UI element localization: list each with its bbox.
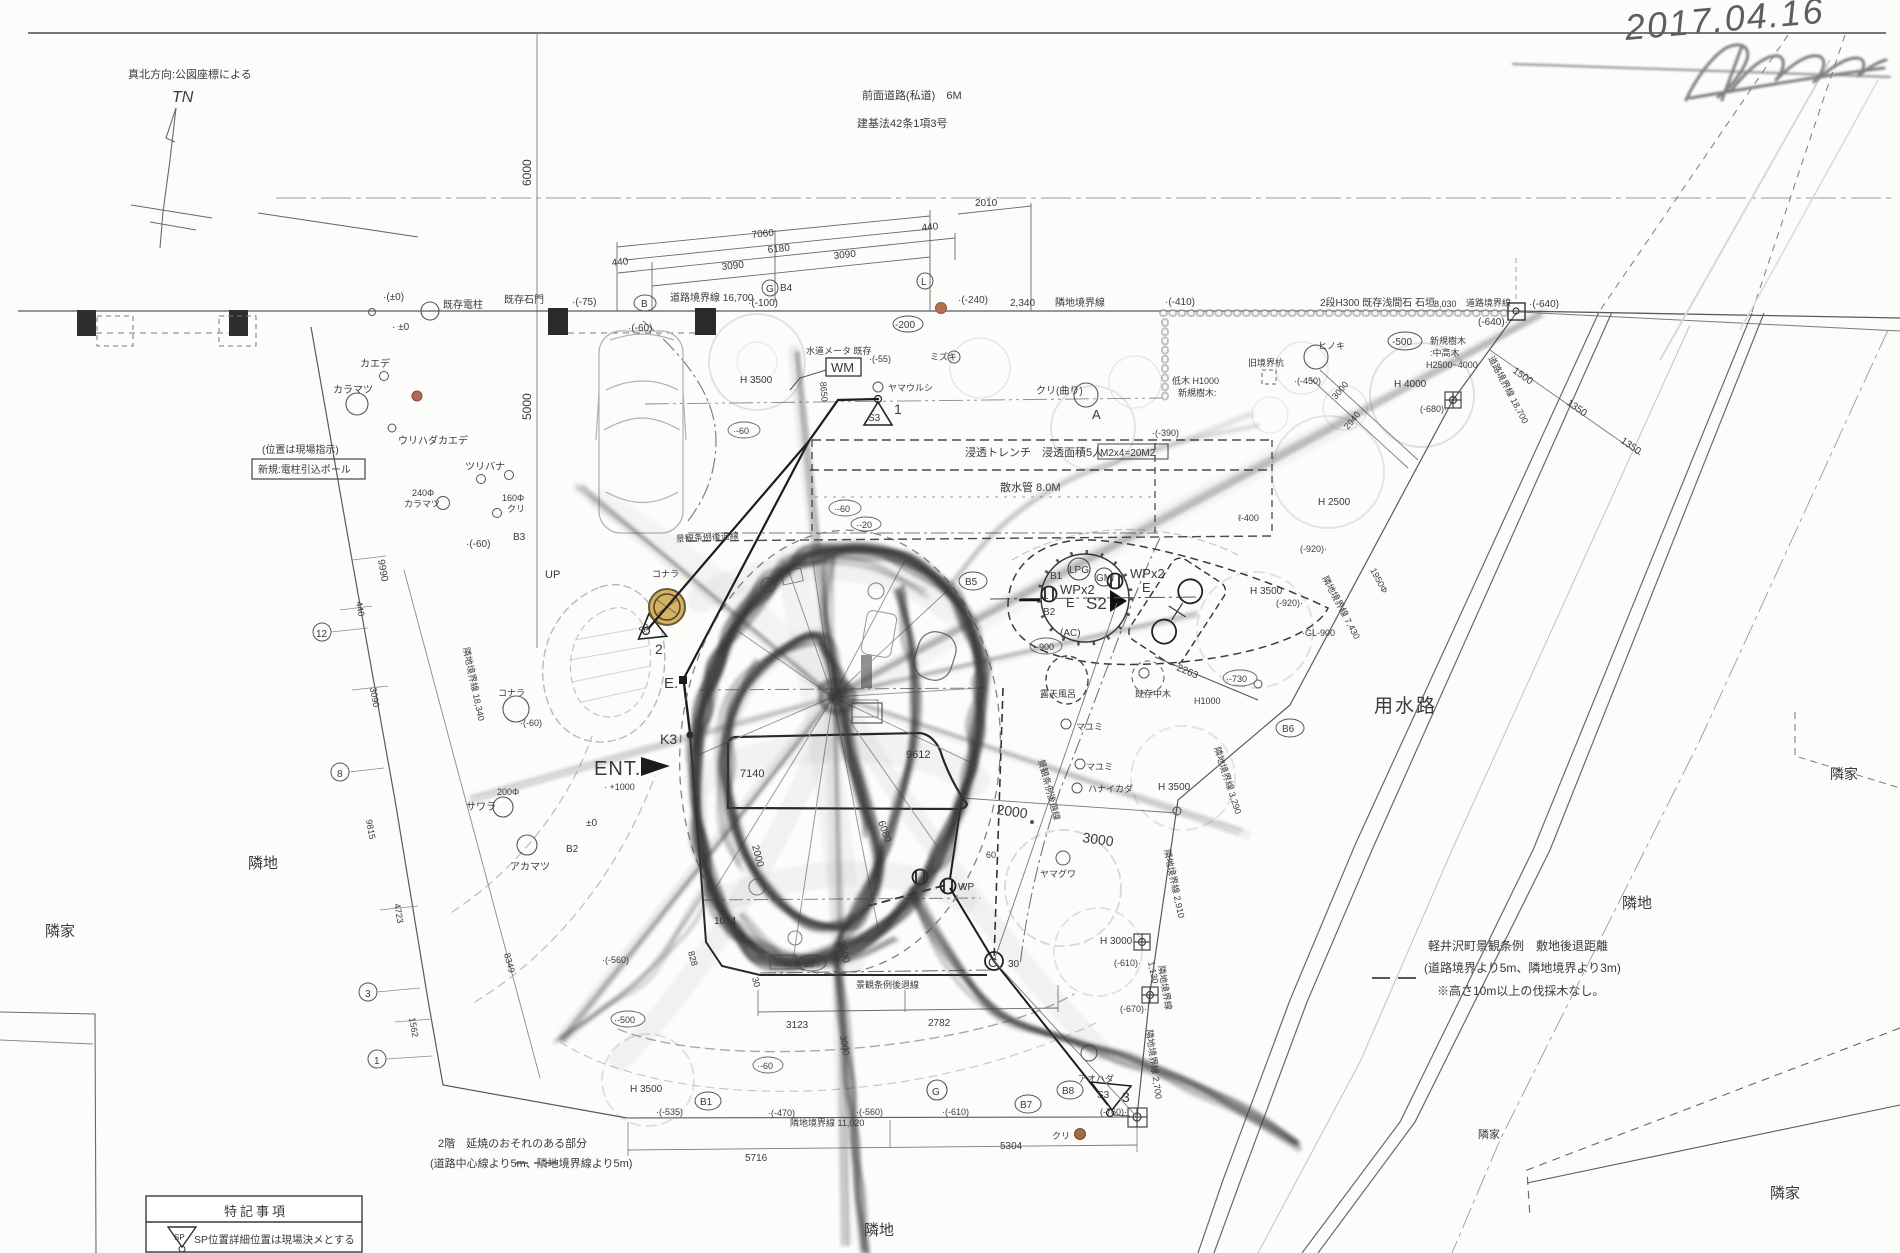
svg-text:·(-560): ·(-560) bbox=[856, 1107, 883, 1117]
svg-text:8,030: 8,030 bbox=[1434, 299, 1457, 309]
svg-text:ℓ-400: ℓ-400 bbox=[1238, 513, 1259, 523]
svg-text:ツリバナ: ツリバナ bbox=[465, 461, 505, 473]
svg-text:用水路: 用水路 bbox=[1374, 695, 1437, 717]
svg-text:·(-60): ·(-60) bbox=[466, 539, 490, 550]
svg-text:(-610)·: (-610)· bbox=[1114, 958, 1141, 968]
svg-text:マユミ: マユミ bbox=[1076, 722, 1103, 732]
svg-text:8650: 8650 bbox=[818, 381, 830, 402]
svg-text:·GL-900: ·GL-900 bbox=[1302, 628, 1335, 638]
svg-text:(道路中心線より5m、隣地境界線より5m): (道路中心線より5m、隣地境界線より5m) bbox=[430, 1156, 632, 1170]
svg-text:12: 12 bbox=[316, 629, 328, 640]
svg-text:B: B bbox=[641, 299, 648, 310]
svg-text:440: 440 bbox=[611, 256, 629, 269]
svg-text:ミズキ: ミズキ bbox=[930, 351, 957, 362]
svg-text:ウリハダカエデ: ウリハダカエデ bbox=[398, 434, 468, 447]
svg-text:8: 8 bbox=[337, 769, 343, 780]
svg-text:2010: 2010 bbox=[975, 198, 998, 209]
svg-text:·(-535): ·(-535) bbox=[656, 1107, 683, 1117]
svg-text:新規樹木: 新規樹木 bbox=[1430, 335, 1466, 346]
svg-text:真北方向:公図座標による: 真北方向:公図座標による bbox=[128, 67, 252, 81]
svg-text:·(-410): ·(-410) bbox=[1165, 297, 1195, 308]
svg-text:3: 3 bbox=[365, 989, 371, 1000]
svg-text:道路境界線 16,700: 道路境界線 16,700 bbox=[670, 291, 754, 304]
svg-text:5716: 5716 bbox=[745, 1153, 768, 1164]
svg-text:H 3500: H 3500 bbox=[1158, 782, 1191, 793]
svg-text:※高さ10m以上の伐採木なし。: ※高さ10m以上の伐採木なし。 bbox=[1437, 983, 1604, 998]
svg-text:60: 60 bbox=[986, 850, 996, 860]
svg-text:クリ: クリ bbox=[507, 504, 525, 514]
svg-text:· ±0: · ±0 bbox=[392, 322, 410, 333]
svg-text:G: G bbox=[766, 284, 774, 295]
svg-text:(-920)·: (-920)· bbox=[1300, 544, 1327, 554]
svg-text:隣地境界線: 隣地境界線 bbox=[1055, 296, 1105, 309]
svg-text:B7: B7 bbox=[1020, 1100, 1033, 1111]
svg-text:B5: B5 bbox=[965, 577, 978, 588]
svg-text:隣地: 隣地 bbox=[248, 855, 278, 872]
svg-text:·-60: ·-60 bbox=[733, 426, 749, 436]
svg-text:マユミ: マユミ bbox=[1086, 762, 1113, 772]
svg-text:H1000: H1000 bbox=[1194, 696, 1221, 706]
svg-text:既存石門: 既存石門 bbox=[504, 293, 544, 306]
svg-text:隣地: 隣地 bbox=[1622, 895, 1652, 912]
svg-text:既存電柱: 既存電柱 bbox=[443, 298, 483, 311]
svg-text:B2: B2 bbox=[1043, 607, 1056, 618]
svg-text:G: G bbox=[932, 1087, 940, 1098]
svg-text:ヒノキ: ヒノキ bbox=[1318, 341, 1345, 351]
svg-text:E: E bbox=[1066, 595, 1075, 610]
svg-text:建基法42条1項3号: 建基法42条1項3号 bbox=[857, 116, 947, 130]
svg-text:カラマツ: カラマツ bbox=[404, 499, 440, 509]
svg-text:浸透トレンチ 浸透面積5人: 浸透トレンチ 浸透面積5人 bbox=[965, 445, 1103, 459]
svg-text:·(-610): ·(-610) bbox=[942, 1107, 969, 1117]
svg-text:B6: B6 bbox=[1282, 724, 1295, 735]
svg-text:UP: UP bbox=[545, 569, 560, 581]
svg-text:·-20: ·-20 bbox=[856, 520, 872, 530]
svg-text:2,340: 2,340 bbox=[1010, 298, 1035, 309]
svg-text:240Φ: 240Φ bbox=[412, 488, 434, 498]
svg-text:WPx2: WPx2 bbox=[1130, 566, 1165, 581]
svg-text:カラマツ: カラマツ bbox=[333, 384, 373, 396]
svg-text:旧境界杭: 旧境界杭 bbox=[1248, 357, 1284, 368]
svg-text:·(-75): ·(-75) bbox=[572, 297, 596, 308]
svg-text:S3: S3 bbox=[1097, 1090, 1110, 1101]
svg-text:C: C bbox=[988, 955, 997, 970]
svg-text:ヤマグワ: ヤマグワ bbox=[1040, 868, 1076, 879]
svg-text:A: A bbox=[1092, 407, 1101, 422]
svg-text:S3: S3 bbox=[868, 413, 881, 424]
svg-text:GM: GM bbox=[1096, 573, 1112, 584]
svg-text:隣家: 隣家 bbox=[1770, 1185, 1800, 1202]
svg-text:前面道路(私道) 6M: 前面道路(私道) 6M bbox=[862, 88, 962, 102]
svg-text:160Φ: 160Φ bbox=[502, 493, 524, 503]
svg-text:隣家: 隣家 bbox=[1478, 1127, 1500, 1141]
svg-text:既存中木: 既存中木 bbox=[1135, 688, 1171, 699]
svg-text:ヤマウルシ: ヤマウルシ bbox=[888, 383, 933, 393]
svg-text:-200: -200 bbox=[895, 320, 915, 331]
svg-text:WM: WM bbox=[831, 360, 854, 375]
svg-text:·-730: ·-730 bbox=[1226, 674, 1247, 684]
svg-text:· +1000: · +1000 bbox=[604, 782, 635, 792]
svg-text:·-60: ·-60 bbox=[757, 1061, 773, 1071]
svg-text:H 3500: H 3500 bbox=[630, 1084, 663, 1095]
svg-text:E.: E. bbox=[664, 675, 678, 692]
svg-text:サワラ: サワラ bbox=[466, 801, 496, 813]
svg-text:·(-470): ·(-470) bbox=[768, 1108, 795, 1118]
svg-text:·(-450): ·(-450) bbox=[1294, 376, 1321, 386]
svg-text:軽井沢町景観条例 敷地後退距離: 軽井沢町景観条例 敷地後退距離 bbox=[1428, 938, 1608, 953]
svg-text:新規樹木:: 新規樹木: bbox=[1178, 387, 1217, 398]
svg-text:H 2500: H 2500 bbox=[1318, 497, 1351, 508]
svg-text:2: 2 bbox=[655, 641, 663, 657]
svg-text:(-680)·: (-680)· bbox=[1420, 404, 1447, 414]
svg-text:隣家: 隣家 bbox=[45, 923, 75, 940]
svg-text:(位置は現場指示): (位置は現場指示) bbox=[262, 443, 339, 456]
svg-text:新規:電柱引込ポール: 新規:電柱引込ポール bbox=[258, 463, 351, 476]
svg-text:(-670)·: (-670)· bbox=[1120, 1004, 1147, 1014]
svg-text:-500: -500 bbox=[1392, 337, 1412, 348]
svg-text:E: E bbox=[1142, 580, 1151, 595]
svg-text:B3: B3 bbox=[513, 532, 526, 543]
svg-text:1: 1 bbox=[894, 401, 902, 417]
svg-text:SP位置詳細位置は現場決メとする: SP位置詳細位置は現場決メとする bbox=[194, 1233, 355, 1246]
svg-text:アカマツ: アカマツ bbox=[510, 861, 550, 873]
svg-text:H 3000: H 3000 bbox=[1100, 936, 1133, 947]
svg-text:440: 440 bbox=[921, 221, 939, 234]
svg-text:カエデ: カエデ bbox=[360, 357, 390, 370]
svg-text:·(±0): ·(±0) bbox=[383, 292, 404, 303]
svg-text:H 3500: H 3500 bbox=[1250, 586, 1283, 597]
svg-text:隣家: 隣家 bbox=[1830, 766, 1858, 782]
svg-text:(-920)·: (-920)· bbox=[1276, 598, 1303, 608]
svg-text:クリ(曲り): クリ(曲り) bbox=[1036, 385, 1083, 397]
svg-text:·(-390): ·(-390) bbox=[1152, 428, 1179, 438]
svg-text:2段H300 既存浅間石 石垣: 2段H300 既存浅間石 石垣 bbox=[1320, 296, 1435, 309]
svg-text:·(-240): ·(-240) bbox=[958, 295, 988, 306]
svg-text:5304: 5304 bbox=[1000, 1141, 1023, 1152]
svg-text:·(-60): ·(-60) bbox=[628, 323, 652, 334]
svg-text:·(-100): ·(-100) bbox=[748, 298, 778, 309]
svg-text:低木 H1000: 低木 H1000 bbox=[1172, 375, 1219, 386]
svg-text:露天風呂: 露天風呂 bbox=[1040, 689, 1076, 699]
svg-text:(-760)·: (-760)· bbox=[1100, 1107, 1127, 1117]
svg-text:H 3500: H 3500 bbox=[740, 375, 773, 386]
svg-text:2782: 2782 bbox=[928, 1018, 951, 1029]
svg-text:3: 3 bbox=[1122, 1089, 1130, 1105]
svg-text:·(-55): ·(-55) bbox=[869, 354, 891, 364]
svg-text:2階 延焼のおそれのある部分: 2階 延焼のおそれのある部分 bbox=[438, 1136, 587, 1150]
svg-text:·-500: ·-500 bbox=[614, 1015, 635, 1025]
svg-text:±0: ±0 bbox=[586, 818, 597, 829]
svg-text:L: L bbox=[921, 277, 927, 288]
svg-text:B2: B2 bbox=[566, 844, 579, 855]
svg-text:道路境界線: 道路境界線 bbox=[1466, 297, 1511, 308]
svg-text:B1: B1 bbox=[700, 1097, 713, 1108]
svg-text:·-60: ·-60 bbox=[834, 504, 850, 514]
svg-text:SP: SP bbox=[174, 1233, 185, 1242]
svg-text:コナラ: コナラ bbox=[498, 688, 525, 698]
svg-text:景観条例後退線: 景観条例後退線 bbox=[856, 979, 919, 990]
svg-text:水道メータ 既存: 水道メータ 既存 bbox=[806, 345, 872, 356]
svg-text:(-640)·: (-640)· bbox=[1478, 317, 1508, 328]
svg-text:5000: 5000 bbox=[520, 393, 534, 420]
svg-text:アオハダ: アオハダ bbox=[1078, 1073, 1114, 1084]
svg-text:TN: TN bbox=[172, 89, 194, 106]
svg-text:S2: S2 bbox=[1086, 594, 1107, 613]
svg-text:B8: B8 bbox=[1062, 1086, 1075, 1097]
svg-text:特記事項: 特記事項 bbox=[224, 1204, 288, 1219]
svg-text:B4: B4 bbox=[780, 283, 793, 294]
svg-text:3123: 3123 bbox=[786, 1020, 809, 1031]
svg-text:(道路境界より5m、隣地境界より3m): (道路境界より5m、隣地境界より3m) bbox=[1424, 960, 1621, 975]
svg-text:6000: 6000 bbox=[520, 159, 534, 186]
svg-text:·(-60): ·(-60) bbox=[520, 718, 542, 728]
svg-text:1: 1 bbox=[374, 1056, 380, 1067]
svg-text:クリ: クリ bbox=[1052, 1131, 1070, 1141]
